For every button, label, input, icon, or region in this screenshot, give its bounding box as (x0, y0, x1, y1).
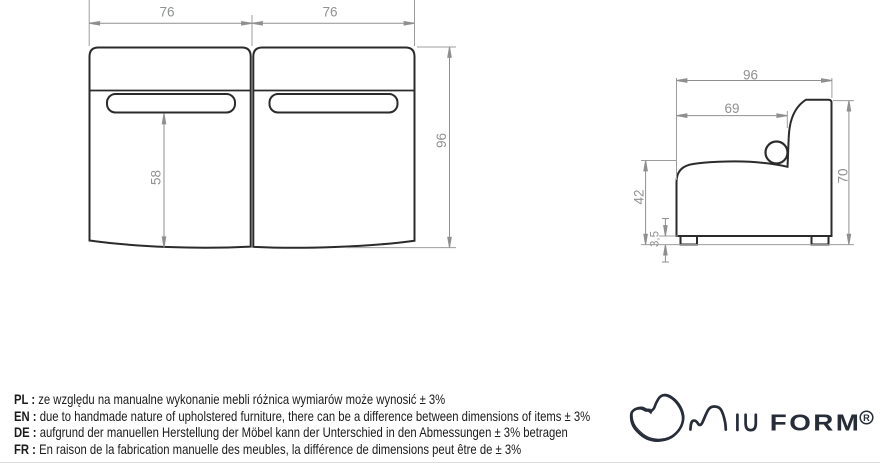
svg-text:96: 96 (743, 68, 758, 83)
svg-text:42: 42 (632, 189, 647, 204)
svg-text:96: 96 (434, 133, 449, 148)
svg-text:FORM: FORM (770, 410, 862, 436)
svg-text:58: 58 (148, 170, 163, 185)
svg-text:70: 70 (836, 168, 851, 183)
svg-text:69: 69 (724, 101, 739, 116)
svg-text:76: 76 (322, 4, 337, 19)
svg-text:76: 76 (159, 4, 174, 19)
svg-text:R: R (863, 413, 870, 423)
